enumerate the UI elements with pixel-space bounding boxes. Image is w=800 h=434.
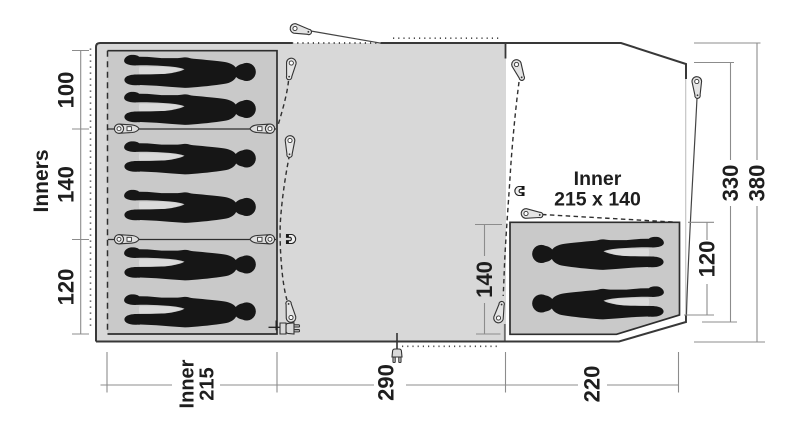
svg-text:Inner: Inner [574,168,622,190]
svg-text:215 x 140: 215 x 140 [554,189,641,211]
svg-text:140: 140 [54,166,79,203]
svg-text:Inners: Inners [30,149,53,212]
svg-text:220: 220 [580,366,605,403]
svg-text:380: 380 [745,165,770,202]
svg-text:120: 120 [54,269,79,306]
svg-text:140: 140 [472,261,497,298]
svg-text:Inner: Inner [177,359,199,408]
svg-text:120: 120 [695,241,720,278]
svg-text:290: 290 [374,364,399,401]
svg-text:330: 330 [718,165,743,202]
svg-text:100: 100 [54,72,79,109]
svg-text:215: 215 [197,367,219,400]
